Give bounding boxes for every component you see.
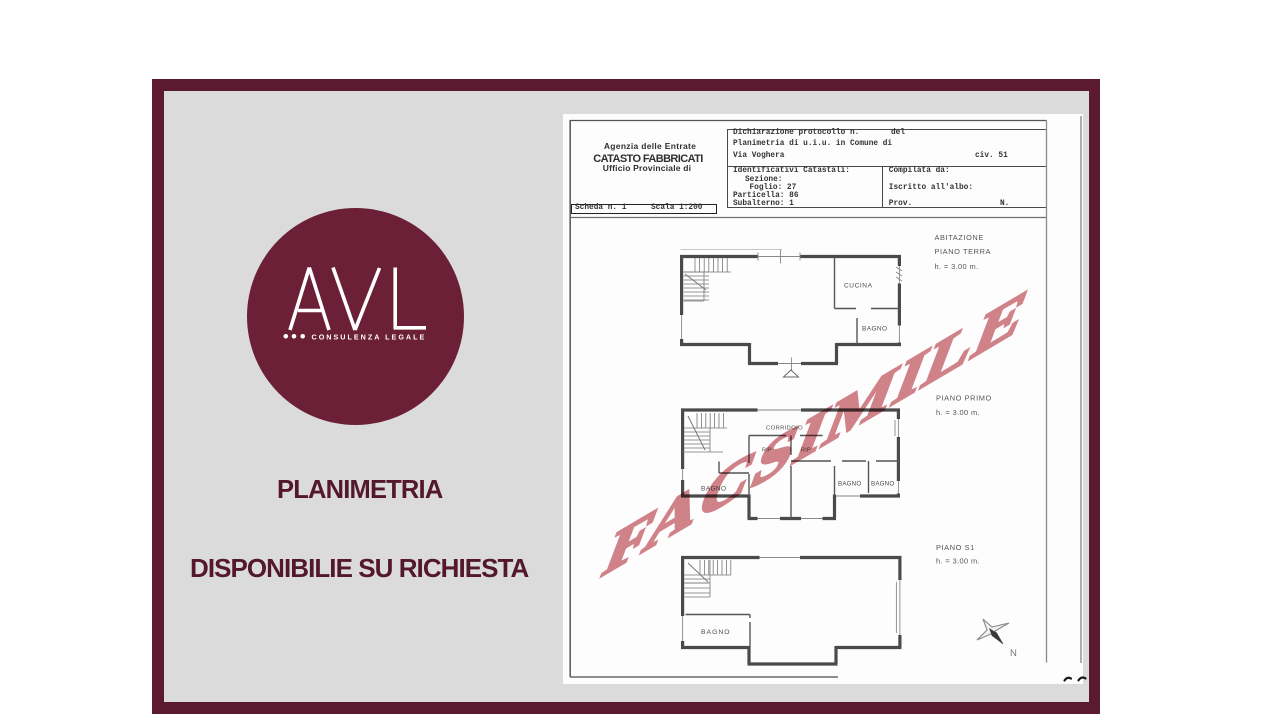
svg-text:PIANO S1: PIANO S1 [936,543,975,552]
svg-text:BAGNO: BAGNO [838,481,861,488]
svg-text:h. = 3.00 m.: h. = 3.00 m. [936,408,980,417]
svg-text:h. = 3.00 m.: h. = 3.00 m. [935,262,979,271]
svg-text:h. = 3.00 m.: h. = 3.00 m. [936,557,980,566]
svg-text:BAGNO: BAGNO [701,629,731,636]
svg-text:N: N [1010,648,1017,659]
svg-text:PIANO PRIMO: PIANO PRIMO [936,393,992,402]
svg-text:ABITAZIONE: ABITAZIONE [935,233,984,242]
svg-text:BAGNO: BAGNO [862,326,887,333]
svg-text:CUCINA: CUCINA [844,283,873,290]
svg-text:PIANO TERRA: PIANO TERRA [935,247,992,256]
svg-text:BAGNO: BAGNO [871,481,894,488]
